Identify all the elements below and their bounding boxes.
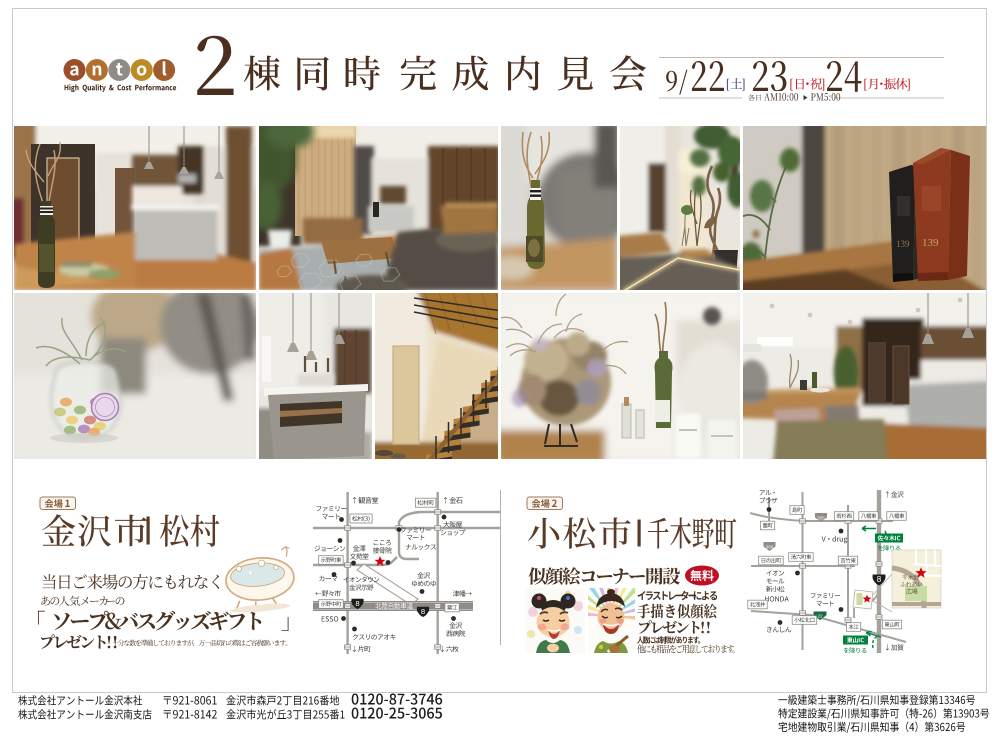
svg-text:139: 139 [896, 239, 910, 249]
svg-text:8: 8 [877, 575, 882, 584]
svg-text:139: 139 [922, 237, 939, 249]
svg-text:360: 360 [766, 544, 774, 549]
svg-text:22: 22 [817, 613, 823, 618]
svg-text:8: 8 [355, 599, 359, 608]
svg-text:305: 305 [817, 515, 825, 520]
svg-text:8: 8 [421, 607, 425, 616]
